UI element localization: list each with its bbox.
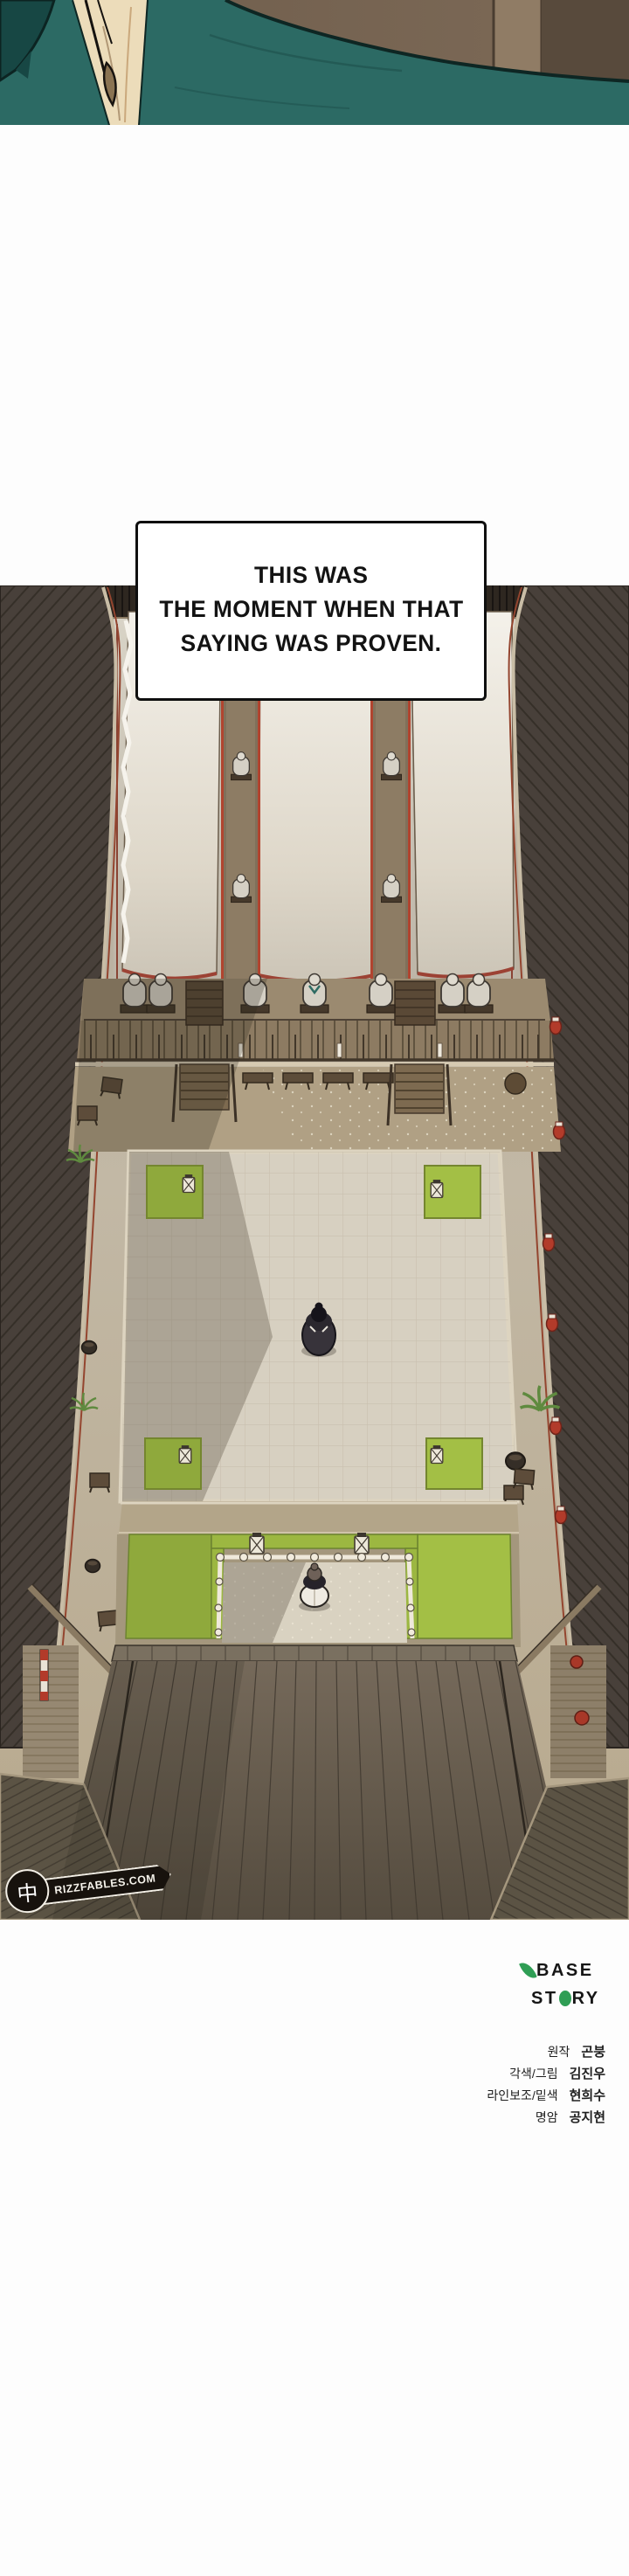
watermark-cjk: 中 [16, 1875, 39, 1908]
logo-story-st: ST [531, 1989, 558, 2009]
watermark-cjk-badge: 中 [3, 1867, 51, 1915]
striped-pole [40, 1650, 48, 1700]
narration-line: THIS WAS [254, 558, 368, 592]
leaf-icon [519, 1959, 537, 1981]
credit-name: 공지현 [570, 2110, 605, 2125]
logo-line-1: BASE [522, 1957, 600, 1984]
credit-name: 곤붕 [581, 2045, 605, 2060]
logo-base-text: BASE [536, 1961, 594, 1981]
panel-character-closeup [0, 0, 629, 125]
narration-bubble: THIS WAS THE MOMENT WHEN THAT SAYING WAS… [135, 521, 487, 701]
logo-story-ry: RY [572, 1989, 600, 2009]
narration-line: THE MOMENT WHEN THAT [159, 592, 463, 627]
narration-line: SAYING WAS PROVEN. [181, 627, 442, 661]
lower-terrace [115, 1533, 521, 1647]
red-lantern [575, 1711, 589, 1725]
credit-row: 라인보조/밑색현희수 [487, 2085, 605, 2107]
closeup-illustration [0, 0, 629, 125]
red-lantern [570, 1656, 583, 1668]
credit-name: 현희수 [570, 2088, 605, 2103]
logo-green-o-icon [559, 1991, 571, 2006]
terrace-lantern [355, 1533, 369, 1554]
credits: 원작곤붕 각색/그림김진우 라인보조/밑색현희수 명암공지현 [487, 2041, 605, 2129]
mid-walk-strip [119, 1501, 519, 1534]
credit-role: 라인보조/밑색 [487, 2088, 557, 2102]
credit-role: 명암 [536, 2110, 558, 2124]
credit-role: 원작 [548, 2045, 570, 2059]
round-table [505, 1073, 526, 1094]
credit-row: 명암공지현 [487, 2107, 605, 2129]
watermark-banner: RIZZFABLES.COM [41, 1863, 173, 1905]
terrace-lantern [250, 1533, 264, 1554]
watermark-site: RIZZFABLES.COM [54, 1872, 157, 1896]
credit-name: 김진우 [570, 2067, 605, 2081]
credit-row: 원작곤붕 [487, 2041, 605, 2063]
credit-row: 각색/그림김진우 [487, 2063, 605, 2085]
publisher-logo: BASE ST RY [522, 1957, 600, 2012]
logo-line-2: ST RY [531, 1985, 600, 2012]
panel-courtyard-overhead [0, 585, 629, 1920]
credit-role: 각색/그림 [509, 2067, 557, 2081]
webtoon-page: THIS WAS THE MOMENT WHEN THAT SAYING WAS… [0, 0, 629, 2576]
privacy-screen [395, 981, 435, 1025]
mat-lantern [431, 1445, 443, 1463]
ridge-band [112, 1645, 517, 1661]
left-gate-wall [23, 1645, 79, 1778]
courtyard-illustration [0, 585, 629, 1920]
mat-lantern [179, 1445, 191, 1463]
mat-lantern [431, 1180, 443, 1197]
mat-lantern [183, 1174, 195, 1192]
stone-courtyard [121, 1152, 517, 1501]
